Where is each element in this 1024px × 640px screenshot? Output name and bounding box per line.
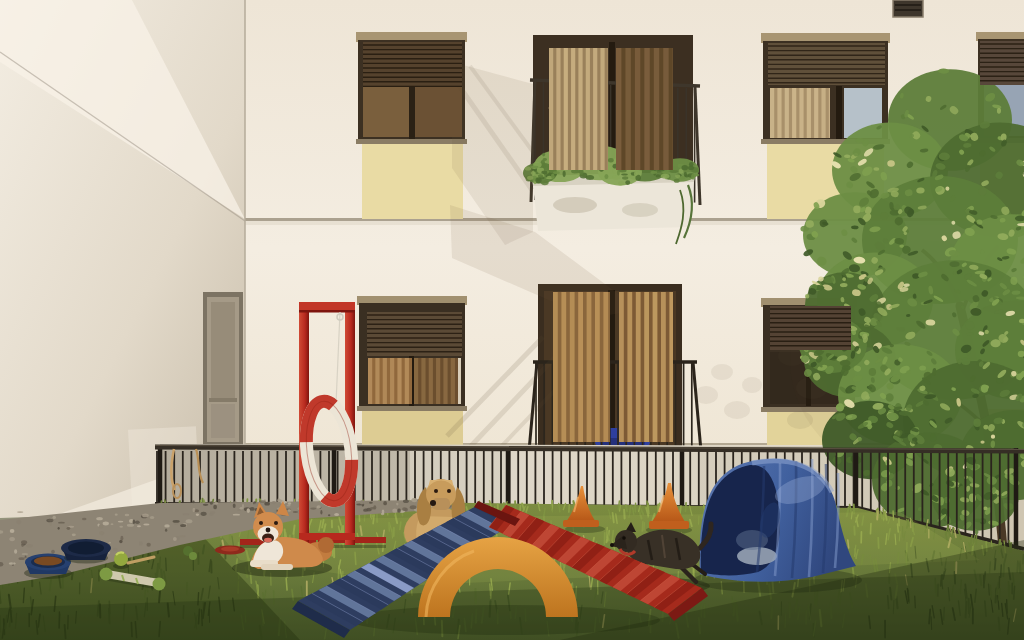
shiba-nose	[266, 528, 271, 533]
brindle-nose	[610, 543, 614, 547]
shiba-tongue	[264, 538, 272, 543]
mesh-door	[203, 292, 243, 446]
courtyard-render	[0, 0, 1024, 640]
vent-grille	[893, 0, 923, 17]
shiba-tail	[318, 537, 334, 553]
shiba-eye	[259, 521, 263, 525]
courtyard-scene	[0, 0, 1024, 640]
kibble	[34, 557, 62, 566]
brindle-eye	[622, 536, 626, 540]
door-handle-bar	[209, 398, 237, 402]
ramp-shadow	[350, 605, 660, 635]
cocker-nose	[430, 500, 436, 506]
cocker-eye	[434, 489, 438, 493]
